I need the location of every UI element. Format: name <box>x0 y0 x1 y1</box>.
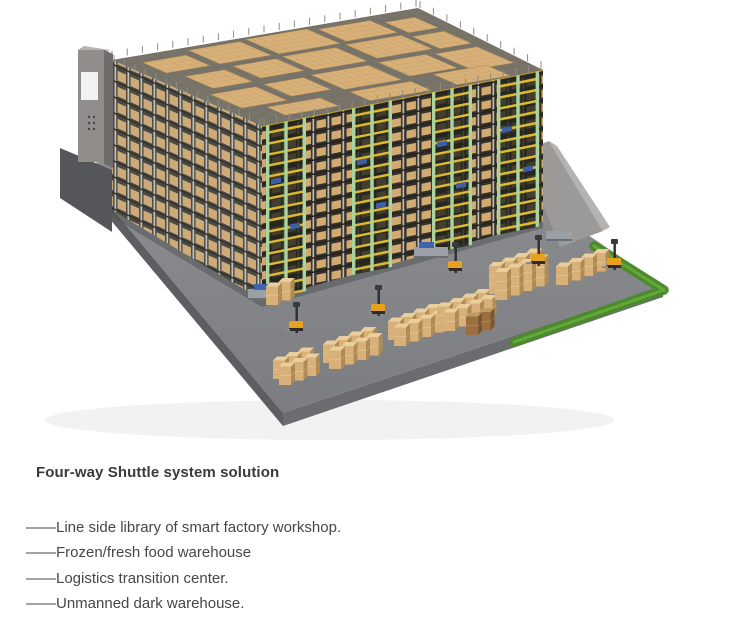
feature-item: ——Logistics transition center. <box>26 566 341 591</box>
feature-item: ——Frozen/fresh food warehouse <box>26 540 341 565</box>
lift-tower <box>432 84 472 253</box>
lift-tower <box>266 117 306 299</box>
feature-item: ——Unmanned dark warehouse. <box>26 591 341 616</box>
tower-window <box>81 72 98 100</box>
lift-tower <box>497 71 539 235</box>
feature-item: ——Line side library of smart factory wor… <box>26 515 341 540</box>
feature-list: ——Line side library of smart factory wor… <box>26 515 341 617</box>
tower-side <box>104 50 113 168</box>
section-heading: Four-way Shuttle system solution <box>36 464 279 481</box>
tower-front <box>78 50 104 162</box>
control-tower <box>60 46 113 232</box>
lift-tower <box>352 100 392 275</box>
warehouse-illustration <box>0 0 729 452</box>
